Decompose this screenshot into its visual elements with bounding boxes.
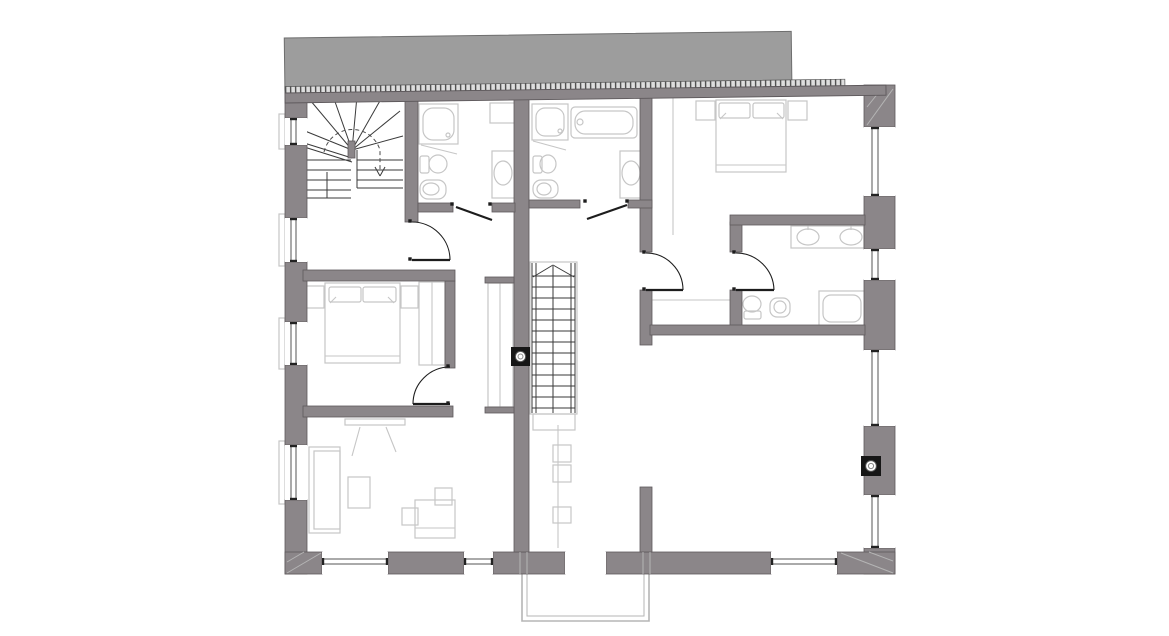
central-spine-wall — [514, 95, 529, 552]
door-hinge-dot-8 — [450, 202, 453, 205]
sofa-inner — [314, 451, 340, 529]
stair-line-6 — [352, 136, 403, 150]
ensuite-north-wall — [730, 215, 865, 225]
window-right-3-cap-top — [871, 350, 879, 352]
shower-tray-2-inner — [536, 108, 564, 136]
window-right-1-cap-bottom — [871, 194, 879, 196]
bedroom-left-east-wall — [445, 281, 455, 368]
window-bottom-3-cap-left — [771, 558, 773, 565]
corridor-east-wall-upper — [640, 95, 652, 252]
window-bottom-3-cap-right — [835, 558, 837, 565]
window-right-4-cap-bottom — [871, 546, 879, 548]
window-right-4 — [864, 495, 895, 548]
winder-newel — [348, 141, 355, 158]
tv — [345, 419, 405, 425]
closet-stub-north — [485, 277, 514, 283]
door-hinge-dot-6 — [732, 250, 735, 253]
door-bath2-leaf — [587, 205, 627, 219]
floor-plan-canvas — [0, 0, 1169, 636]
corridor-east-wall-lower — [640, 487, 652, 552]
toilet1-bowl — [429, 155, 447, 173]
floor-plan — [0, 0, 1169, 636]
stairhall-east-wall — [405, 95, 418, 222]
window-left-4-cap-bottom — [290, 498, 297, 500]
door-hinge-dot-2 — [446, 364, 449, 367]
window-bottom-1-cap-left — [322, 558, 324, 565]
window-bottom-3 — [771, 552, 837, 574]
bottom-wall-seg-3 — [493, 552, 565, 574]
shower-tray-3-inner — [823, 295, 861, 322]
bed-right — [716, 100, 786, 172]
window-bottom-2-cap-left — [464, 558, 466, 565]
door-hinge-dot-5 — [642, 287, 645, 290]
bottom-wall-seg-4 — [606, 552, 771, 574]
plan-root — [279, 30, 895, 621]
stair-landing-outline — [533, 414, 575, 430]
left-pier-4 — [285, 365, 307, 445]
window-right-1 — [864, 127, 895, 196]
light-line-8 — [352, 427, 360, 456]
bath2-south-wall-b — [628, 200, 652, 208]
bath1-shelf — [490, 103, 515, 123]
ensuite-west-stub-upper — [730, 222, 742, 252]
door-hinge-dot-1 — [408, 257, 411, 260]
window-left-2-cap-top — [290, 218, 297, 220]
ensuite-west-stub-lower — [730, 290, 742, 330]
window-right-4-cap-top — [871, 495, 879, 497]
light-line-1 — [533, 141, 566, 150]
bath1-south-wall-b — [492, 203, 515, 212]
window-right-2 — [864, 249, 895, 280]
door-bath1-leaf — [456, 207, 492, 220]
shower1-drain — [446, 133, 450, 137]
coffee-table — [348, 477, 370, 508]
window-right-1-cap-top — [871, 127, 879, 129]
window-bottom-1-cap-right — [386, 558, 388, 565]
column-symbol-1 — [511, 347, 530, 366]
nightstand-left-1 — [306, 286, 324, 308]
bedroom-left-north-wall — [303, 270, 455, 281]
corridor-box-1 — [553, 445, 571, 462]
bidet3-bowl — [774, 301, 786, 313]
column-symbol-2 — [861, 456, 881, 476]
balcony-door-opening — [565, 552, 606, 574]
door-swing-arc-3 — [646, 253, 683, 290]
stair-line-1 — [310, 100, 352, 150]
ensuite-south-wall — [650, 325, 865, 335]
toilet3-bowl — [743, 296, 761, 312]
bath2-south-wall-a — [529, 200, 580, 208]
door-hinge-dot-3 — [446, 401, 449, 404]
door-hinge-dot-9 — [488, 202, 491, 205]
door-swing-arc-4 — [736, 253, 774, 290]
bath1-sink-bowl — [494, 161, 512, 185]
window-left-2-cap-bottom — [290, 260, 297, 262]
nightstand-left-2 — [401, 286, 418, 308]
window-bottom-2-cap-right — [491, 558, 493, 565]
toilet1-tank — [420, 156, 429, 173]
sill-left-3 — [279, 318, 285, 369]
door-swing-arc-1 — [412, 222, 450, 260]
shower-tray-1 — [419, 104, 458, 144]
shower2-drain — [558, 129, 562, 133]
light-line-9 — [386, 427, 396, 452]
window-bottom-1 — [322, 552, 388, 574]
column-symbol-1-circle — [515, 351, 525, 361]
column-symbol-2-circle — [866, 461, 877, 472]
closet-stub-south — [485, 407, 514, 413]
desk — [415, 500, 455, 538]
door-hinge-dot-7 — [732, 287, 735, 290]
bath1-south-wall-a — [418, 203, 453, 212]
vanity-sink-1 — [797, 229, 819, 245]
window-right-3 — [864, 350, 895, 426]
right-pier-2 — [864, 196, 895, 249]
balcony-outline-2 — [527, 570, 644, 616]
bathtub-inner — [575, 111, 633, 134]
window-left-1-cap-bottom — [290, 143, 297, 145]
window-left-3-cap-top — [290, 322, 297, 324]
corridor-east-wall-mid — [640, 290, 652, 345]
bath2-sink-counter — [620, 151, 642, 198]
shower-tray-2 — [532, 104, 568, 140]
desk-chair — [402, 508, 418, 525]
bidet1-bowl — [423, 183, 439, 195]
stair-line-21 — [380, 167, 385, 176]
stair-line-20 — [375, 167, 380, 176]
bath2-sink-bowl — [622, 161, 640, 185]
door-hinge-dot-10 — [583, 199, 586, 202]
window-right-2-cap-top — [871, 249, 879, 251]
nightstand-right-2 — [788, 101, 807, 120]
nightstand-right-1 — [696, 101, 715, 120]
sill-left-2 — [279, 214, 285, 266]
roof-group — [284, 30, 886, 103]
window-right-2-cap-bottom — [871, 278, 879, 280]
stair-line-0 — [305, 131, 352, 150]
bottom-wall-seg-2 — [388, 552, 464, 574]
door-hinge-dot-11 — [625, 199, 628, 202]
window-right-3-cap-bottom — [871, 424, 879, 426]
balcony-outline-1 — [522, 570, 649, 621]
window-bottom-2 — [464, 552, 493, 574]
bidet2-bowl — [537, 183, 551, 195]
door-hinge-dot-4 — [642, 250, 645, 253]
window-left-3-cap-bottom — [290, 363, 297, 365]
window-left-4-cap-top — [290, 445, 297, 447]
vanity-sink-2 — [840, 229, 862, 245]
corridor-box-3 — [553, 507, 571, 523]
light-line-0 — [421, 145, 457, 154]
sill-left-1 — [279, 114, 285, 149]
sill-left-4 — [279, 441, 285, 504]
right-pier-3 — [864, 280, 895, 350]
door-swing-arc-2 — [413, 367, 450, 404]
toilet2-tank — [533, 156, 542, 173]
door-hinge-dot-0 — [408, 219, 411, 222]
corridor-box-2 — [553, 465, 571, 482]
shower-tray-1-inner — [423, 108, 454, 140]
bedroom-left-south-wall — [303, 406, 453, 417]
bathtub-faucet — [577, 119, 583, 125]
left-pier-2 — [285, 145, 307, 218]
window-left-1-cap-top — [290, 118, 297, 120]
side-table — [435, 488, 452, 505]
